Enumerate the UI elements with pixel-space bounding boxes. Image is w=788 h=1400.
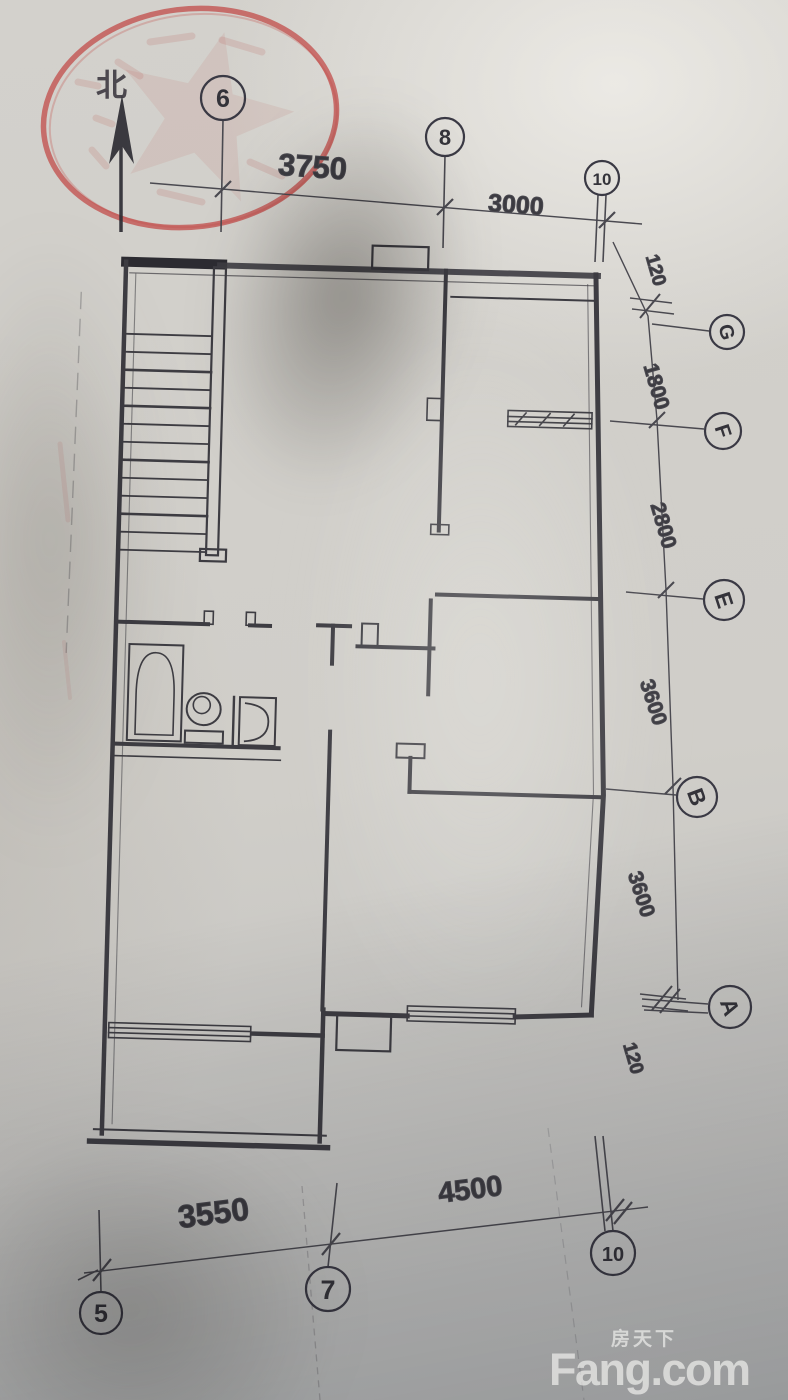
svg-text:B: B bbox=[682, 785, 712, 810]
svg-text:F: F bbox=[710, 422, 736, 441]
watermark-en-label: Fang.com bbox=[549, 1347, 784, 1392]
dimensions: 3750 3000 bbox=[78, 120, 709, 1400]
toilet-icon bbox=[185, 693, 224, 744]
svg-text:10: 10 bbox=[593, 170, 612, 189]
dim-top-1: 3750 bbox=[277, 147, 348, 187]
dim-bottom-1: 3550 bbox=[176, 1191, 251, 1235]
floorplan-photo: 北 bbox=[0, 0, 788, 1400]
sink-icon bbox=[239, 697, 276, 746]
wall-right bbox=[575, 275, 618, 1015]
axis-bubble-right-e: E bbox=[704, 580, 744, 620]
crease-line-1 bbox=[302, 1186, 320, 1400]
balcony-window bbox=[108, 1023, 250, 1042]
axis-bubble-right-a: A bbox=[709, 986, 751, 1028]
interior-window bbox=[508, 410, 592, 428]
axis-bubble-bottom-10: 10 bbox=[591, 1231, 635, 1275]
svg-text:8: 8 bbox=[439, 125, 451, 150]
axis-bubble-right-f: F bbox=[705, 413, 741, 449]
north-stamp: 北 bbox=[31, 0, 349, 244]
dim-bottom-2: 4500 bbox=[436, 1170, 504, 1210]
svg-text:6: 6 bbox=[216, 85, 230, 113]
bottom-window bbox=[407, 1006, 515, 1024]
chimney-box bbox=[372, 246, 429, 271]
floorplan-drawing: 北 bbox=[0, 0, 788, 1400]
plan-walls bbox=[53, 237, 619, 1155]
svg-text:E: E bbox=[709, 589, 738, 612]
svg-text:7: 7 bbox=[320, 1275, 335, 1305]
axis-bubble-right-b: B bbox=[677, 777, 717, 817]
dim-chain-bottom bbox=[78, 1136, 648, 1292]
stairs bbox=[120, 334, 212, 552]
dim-right-4: 3600 bbox=[635, 677, 671, 729]
wall-top-dark bbox=[126, 262, 222, 265]
hall-wall bbox=[307, 625, 350, 1010]
dim-right-5: 3600 bbox=[623, 869, 659, 921]
dim-right-3: 2800 bbox=[646, 500, 681, 551]
north-arrow-icon bbox=[109, 95, 134, 232]
bathtub-icon bbox=[127, 644, 184, 741]
dim-chain-right bbox=[606, 242, 709, 1013]
crease-line-left bbox=[66, 292, 81, 652]
dim-right-1: 120 bbox=[641, 252, 670, 288]
axis-bubble-bottom-7: 7 bbox=[306, 1267, 350, 1311]
bottom-room-walls bbox=[324, 1008, 591, 1057]
svg-text:10: 10 bbox=[602, 1244, 624, 1266]
svg-text:5: 5 bbox=[94, 1300, 108, 1328]
axis-bubble-top-10: 10 bbox=[585, 161, 619, 195]
svg-text:G: G bbox=[713, 322, 738, 342]
red-smears bbox=[60, 444, 70, 698]
dim-top-2: 3000 bbox=[487, 189, 544, 221]
dim-right-6: 120 bbox=[618, 1040, 647, 1076]
fang-watermark: 房天下 Fang.com bbox=[549, 1330, 784, 1392]
axis-bubble-right-g: G bbox=[710, 315, 744, 349]
corridor-walls bbox=[356, 598, 435, 694]
svg-text:A: A bbox=[715, 995, 745, 1020]
axis-bubble-bottom-5: 5 bbox=[80, 1292, 122, 1334]
stair-wall bbox=[206, 267, 226, 555]
dim-right-2: 1800 bbox=[639, 361, 674, 412]
wall-left bbox=[102, 262, 126, 1134]
axis-bubble-top-8: 8 bbox=[426, 118, 464, 156]
topright-room-walls bbox=[424, 270, 596, 539]
